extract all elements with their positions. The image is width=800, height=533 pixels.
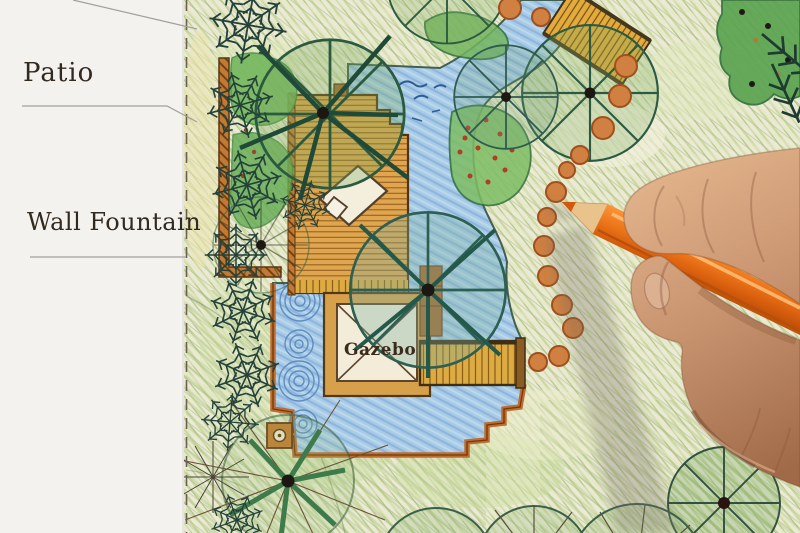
stepping-stone [571,146,589,164]
stepping-stone [615,55,637,77]
landscape-plan-photo: Patio Wall Fountain Gazebo [0,0,800,533]
stepping-stone [549,346,569,366]
plan-drawing [0,0,800,533]
stepping-stone [529,353,547,371]
stepping-stone [532,8,550,26]
gazebo-label: Gazebo [344,340,416,360]
stepping-stone [592,117,614,139]
stepping-stone [499,0,521,19]
wall-fountain-label: Wall Fountain [27,208,201,236]
patio-label: Patio [23,58,94,88]
stepping-stone [609,85,631,107]
stepping-stone [546,182,566,202]
stepping-stone [559,162,575,178]
